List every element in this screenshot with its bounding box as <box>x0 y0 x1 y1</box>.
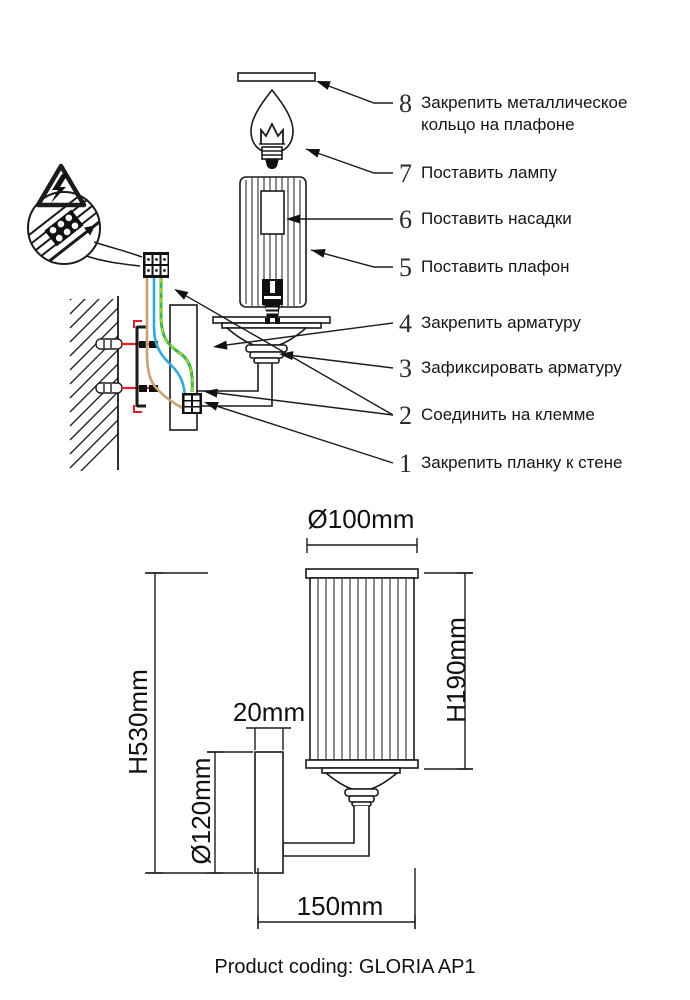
dim-label-overall-height: H530mm <box>125 669 151 774</box>
dim-label-backplate-height: Ø120mm <box>188 758 214 865</box>
step-text: Поставить плафон <box>412 256 570 278</box>
instruction-step-8: 8 Закрепить металлическое кольцо на плаф… <box>392 92 682 136</box>
warning-triangle-icon <box>38 166 84 205</box>
instruction-step-4: 4 Закрепить арматуру <box>392 312 682 336</box>
assembly-instruction-sheet: 8 Закрепить металлическое кольцо на плаф… <box>0 0 690 1000</box>
leader-step-5 <box>311 249 393 267</box>
instruction-step-7: 7 Поставить лампу <box>392 162 682 186</box>
step-number: 3 <box>392 357 412 381</box>
dimension-drawing <box>145 538 473 929</box>
wall-section <box>70 252 118 482</box>
step-text: Поставить насадки <box>412 208 572 230</box>
armature-arm <box>197 363 272 406</box>
lamp-bulb-drawing <box>251 90 293 169</box>
dim-label-backplate-depth: 20mm <box>233 699 305 725</box>
dim-label-shade-height: H190mm <box>443 617 469 722</box>
step-number: 4 <box>392 312 412 336</box>
leader-step-7 <box>306 149 393 173</box>
dim-armature <box>283 768 400 856</box>
armature-part <box>213 317 330 363</box>
step-text: Зафиксировать арматуру <box>412 357 622 379</box>
instruction-step-1: 1 Закрепить планку к стене <box>392 452 682 476</box>
step-text: Соединить на клемме <box>412 404 595 426</box>
dim-shade <box>306 569 418 768</box>
dim-wall-plate <box>255 752 283 873</box>
step-number: 6 <box>392 208 412 232</box>
step-number: 8 <box>392 92 412 116</box>
step-text: Закрепить планку к стене <box>412 452 623 474</box>
step-number: 5 <box>392 256 412 280</box>
step-text: Закрепить металлическое кольцо на плафон… <box>412 92 653 136</box>
exploded-assembly-drawing <box>26 73 393 482</box>
metal-ring-part <box>238 73 315 81</box>
technical-drawing <box>0 0 690 1000</box>
dim-label-shade-diameter: Ø100mm <box>308 506 415 532</box>
step-number: 2 <box>392 404 412 428</box>
step-text: Закрепить арматуру <box>412 312 581 334</box>
instruction-step-6: 6 Поставить насадки <box>392 208 682 232</box>
step-text: Поставить лампу <box>412 162 557 184</box>
shade-insert-cutout <box>261 191 284 234</box>
terminal-block-bottom <box>182 393 202 414</box>
terminal-block-top <box>143 252 169 278</box>
step-number: 7 <box>392 162 412 186</box>
step-number: 1 <box>392 452 412 476</box>
instruction-step-2: 2 Соединить на клемме <box>392 404 682 428</box>
mounting-strip <box>137 326 146 407</box>
instruction-step-5: 5 Поставить плафон <box>392 256 682 280</box>
leader-step-8 <box>316 81 393 103</box>
dimension-lines <box>145 538 473 929</box>
product-coding-caption: Product coding: GLORIA AP1 <box>0 956 690 979</box>
instruction-step-3: 3 Зафиксировать арматуру <box>392 357 682 381</box>
dim-label-projection: 150mm <box>297 893 384 919</box>
